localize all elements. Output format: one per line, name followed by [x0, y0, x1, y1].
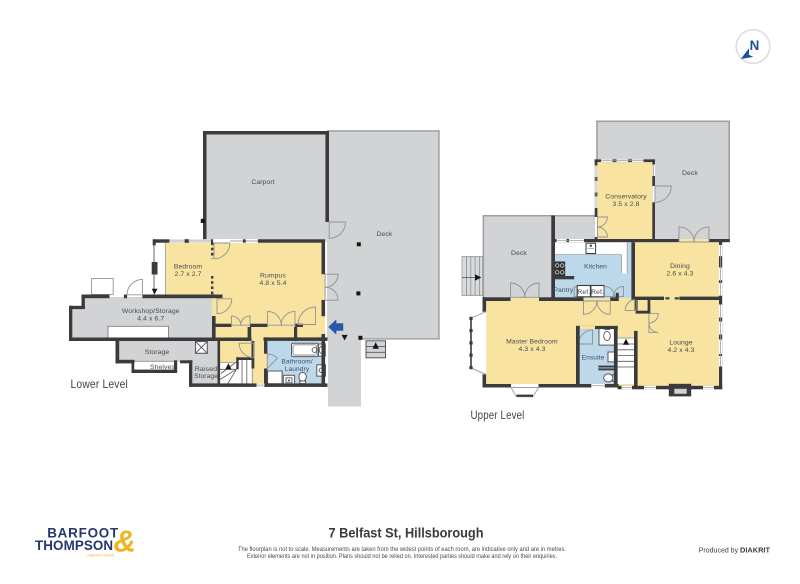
svg-text:Raised: Raised	[195, 366, 218, 373]
svg-text:7 Belfast St, Hillsborough: 7 Belfast St, Hillsborough	[329, 525, 484, 540]
svg-text:Laundry: Laundry	[285, 366, 310, 373]
svg-text:Bathroom/: Bathroom/	[281, 358, 312, 365]
svg-text:Deck: Deck	[377, 231, 393, 238]
svg-text:THOMPSON: THOMPSON	[35, 538, 113, 553]
svg-text:Exterior elements are not in p: Exterior elements are not in position. P…	[247, 553, 557, 560]
svg-text:4.2 x 4.3: 4.2 x 4.3	[668, 347, 695, 354]
svg-text:Storage: Storage	[145, 349, 170, 356]
svg-text:2.7 x 2.7: 2.7 x 2.7	[175, 271, 202, 278]
svg-text:Lower Level: Lower Level	[71, 378, 129, 391]
svg-text:2.6 x 4.3: 2.6 x 4.3	[667, 271, 694, 278]
svg-text:Kitchen: Kitchen	[584, 264, 607, 271]
svg-text:N: N	[750, 38, 760, 53]
svg-text:Rumpus: Rumpus	[260, 273, 286, 280]
svg-text:Bedroom: Bedroom	[174, 263, 203, 270]
svg-text:Dining: Dining	[670, 263, 690, 270]
svg-text:Ensuite: Ensuite	[582, 355, 605, 362]
svg-text:Conservatory: Conservatory	[605, 194, 647, 201]
svg-text:The floorplan is not to scale.: The floorplan is not to scale. Measureme…	[238, 546, 566, 553]
svg-text:Pantry: Pantry	[554, 287, 574, 294]
svg-text:Workshop/Storage: Workshop/Storage	[122, 308, 180, 315]
svg-text:Deck: Deck	[682, 170, 698, 177]
svg-text:Shelves: Shelves	[150, 364, 175, 371]
svg-text:Master Bedroom: Master Bedroom	[506, 338, 558, 345]
svg-text:Ref.: Ref.	[591, 289, 604, 296]
svg-text:&: &	[114, 524, 136, 559]
svg-text:4.3 x 4.3: 4.3 x 4.3	[519, 346, 546, 353]
svg-text:Produced by DIAKRIT: Produced by DIAKRIT	[699, 545, 771, 554]
svg-text:Storage: Storage	[194, 373, 218, 380]
svg-text:LICENSED UNDER THE REAA 2008: LICENSED UNDER THE REAA 2008	[87, 554, 114, 558]
svg-text:4.4 x 6.7: 4.4 x 6.7	[137, 316, 164, 323]
svg-text:4.8 x 5.4: 4.8 x 5.4	[260, 280, 287, 287]
svg-text:3.5 x 2.8: 3.5 x 2.8	[613, 201, 640, 208]
svg-text:Ref.: Ref.	[577, 289, 590, 296]
svg-text:Carport: Carport	[251, 179, 274, 186]
svg-text:Deck: Deck	[511, 250, 527, 257]
svg-text:Lounge: Lounge	[669, 340, 692, 347]
svg-text:Upper Level: Upper Level	[471, 409, 525, 422]
